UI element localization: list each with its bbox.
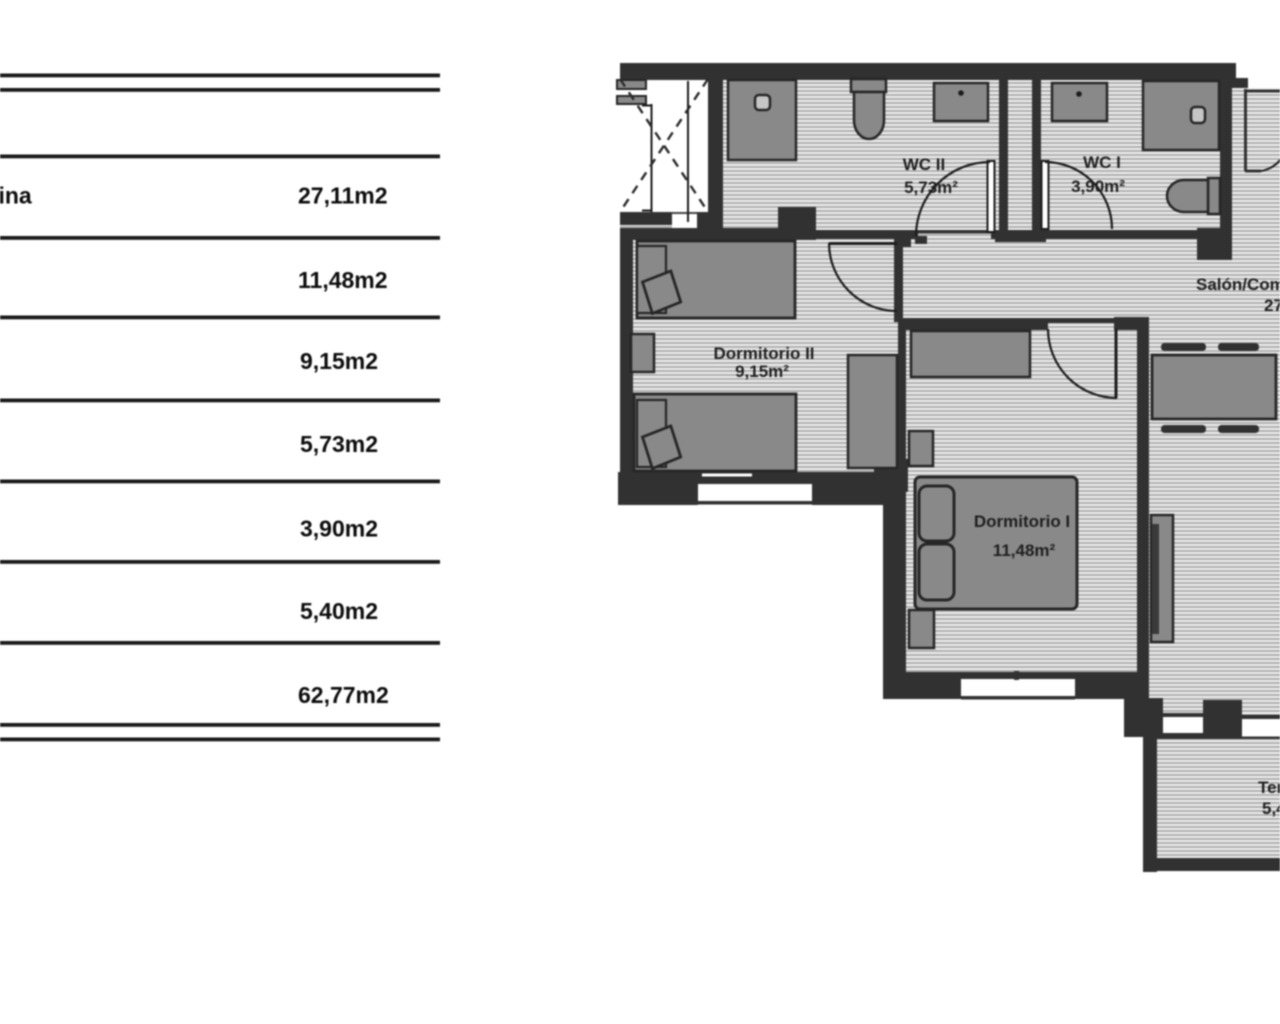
svg-text:3,90m2: 3,90m2 — [300, 516, 378, 542]
svg-text:5,73m²: 5,73m² — [904, 178, 958, 197]
svg-text:11,48m2: 11,48m2 — [298, 267, 388, 293]
svg-text:5,73m2: 5,73m2 — [300, 431, 378, 457]
svg-text:Salón/Comedor: Salón/Comedor — [1196, 275, 1280, 294]
svg-text:Terraza: Terraza — [1258, 778, 1280, 797]
svg-text:9,15m2: 9,15m2 — [300, 348, 378, 374]
svg-text:9,15m²: 9,15m² — [735, 362, 789, 381]
svg-text:62,77m2: 62,77m2 — [298, 682, 389, 708]
svg-text:27,11m2: 27,11m2 — [1264, 296, 1280, 315]
svg-text:WC II: WC II — [903, 155, 946, 174]
svg-text:5,40m2: 5,40m2 — [1262, 799, 1280, 818]
svg-text:Cocina: Cocina — [0, 183, 32, 209]
svg-text:3,90m²: 3,90m² — [1071, 177, 1125, 196]
svg-text:11,48m²: 11,48m² — [993, 541, 1056, 560]
svg-text:5,40m2: 5,40m2 — [300, 598, 378, 624]
svg-text:27,11m2: 27,11m2 — [298, 183, 388, 209]
svg-text:WC I: WC I — [1083, 153, 1121, 172]
svg-text:Dormitorio I: Dormitorio I — [974, 512, 1070, 531]
svg-text:Dormitorio II: Dormitorio II — [713, 344, 814, 363]
